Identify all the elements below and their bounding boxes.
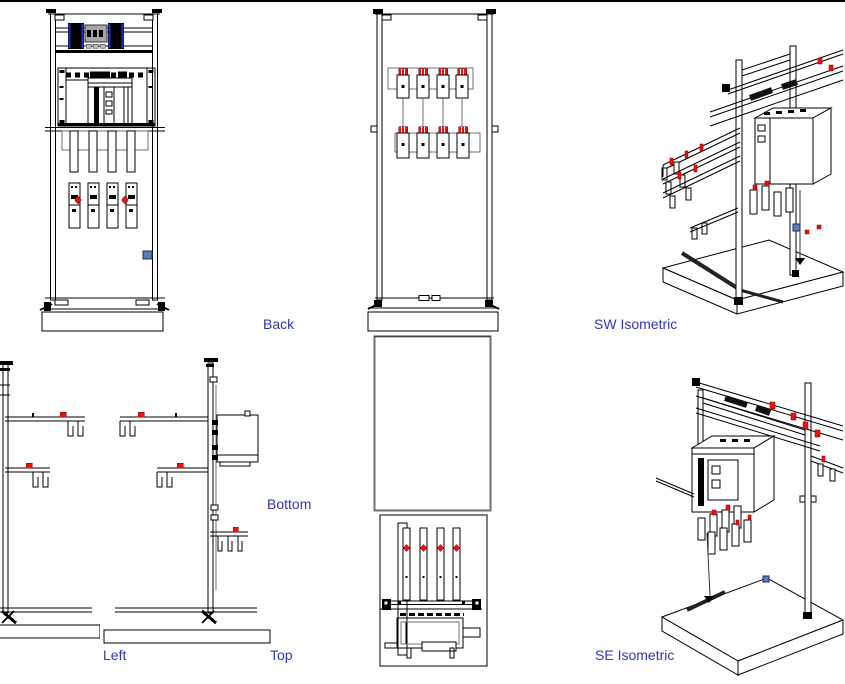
label-sw-isometric: SW Isometric (594, 316, 677, 332)
label-se-isometric: SE Isometric (595, 647, 674, 663)
view-back-elevation (363, 6, 503, 336)
label-left: Left (103, 647, 126, 663)
view-bottom (370, 332, 495, 517)
label-back: Back (263, 316, 294, 332)
label-top: Top (270, 647, 293, 663)
label-bottom: Bottom (267, 496, 311, 512)
view-left-side (100, 355, 280, 650)
view-se-isometric (650, 368, 845, 684)
view-front-elevation (38, 6, 172, 336)
view-right-side-partial (0, 355, 100, 645)
view-sw-isometric (650, 40, 845, 340)
drawing-canvas: Back SW Isometric Bottom Left Top SE Iso… (0, 0, 845, 684)
view-top (376, 513, 488, 684)
top-rule-line (0, 0, 845, 2)
